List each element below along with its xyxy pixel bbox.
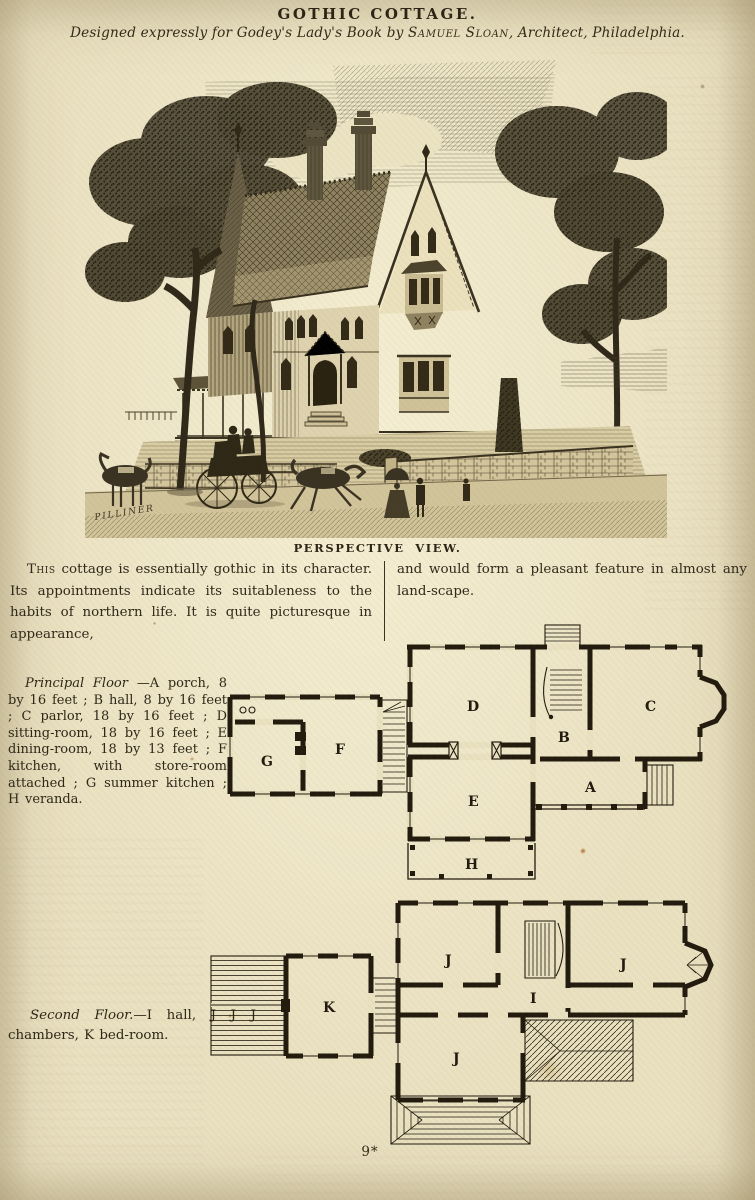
byline: Designed expressly for Godey's Lady's Bo… — [0, 25, 755, 41]
principal-floor-text: —A porch, 8 by 16 feet ; B hall, 8 by 16… — [8, 676, 227, 807]
page-title: GOTHIC COTTAGE. — [0, 5, 755, 23]
second-floor-plan-drawing: J J I J K — [208, 893, 755, 1163]
hall-stairs — [544, 667, 582, 719]
wing-stairs — [382, 700, 407, 792]
principal-floor-lead: Principal Floor — [25, 676, 128, 691]
porch-colonnade — [533, 804, 645, 810]
scanned-book-page: GOTHIC COTTAGE. Designed expressly for G… — [0, 0, 755, 1200]
second-floor-lead: Second Floor. — [30, 1008, 133, 1023]
room-label-J3: J — [451, 1051, 460, 1067]
cottage-engraving: PILLINER — [85, 60, 667, 538]
kitchen-fixtures — [240, 707, 306, 755]
byline-pre: Designed expressly for Godey's Lady's Bo… — [70, 25, 408, 41]
tree-right — [495, 92, 667, 482]
rear-steps — [545, 625, 580, 645]
room-label-F: F — [335, 742, 345, 758]
principal-floor-description: Principal Floor —A porch, 8 by 16 feet ;… — [8, 676, 227, 809]
room-label-K: K — [323, 1000, 336, 1016]
intro-lead-word: This — [27, 562, 56, 577]
room-label-I: I — [530, 991, 537, 1007]
room-label-A: A — [584, 780, 597, 796]
room-label-B: B — [558, 730, 570, 746]
second-floor-plan: J J I J K — [208, 893, 755, 1163]
room-label-E: E — [468, 794, 479, 810]
room-label-D: D — [467, 699, 479, 715]
engraving-illustration: PILLINER — [85, 60, 667, 538]
engraving-caption: PERSPECTIVE VIEW. — [0, 541, 755, 555]
principal-floor-plan: D B C E A H G F — [225, 612, 755, 900]
room-label-J2: J — [618, 957, 627, 973]
room-label-J1: J — [443, 953, 452, 969]
side-steps — [647, 765, 673, 805]
room-label-C: C — [645, 699, 656, 715]
room-label-H: H — [465, 857, 478, 873]
room-label-G: G — [261, 754, 273, 770]
wing-roof-hatched — [211, 956, 286, 1055]
architect-name: Samuel Sloan — [408, 25, 509, 41]
right-roof — [525, 1020, 633, 1081]
central-stairs — [525, 921, 563, 978]
principal-floor-plan-drawing: D B C E A H G F — [225, 612, 755, 900]
page-signature-mark: 9* — [340, 1144, 400, 1160]
foxing-spot — [700, 84, 705, 89]
wing-stairs-second — [373, 978, 398, 1033]
bleed-through-left-margin — [4, 835, 204, 1165]
byline-post: , Architect, Philadelphia. — [509, 25, 685, 41]
